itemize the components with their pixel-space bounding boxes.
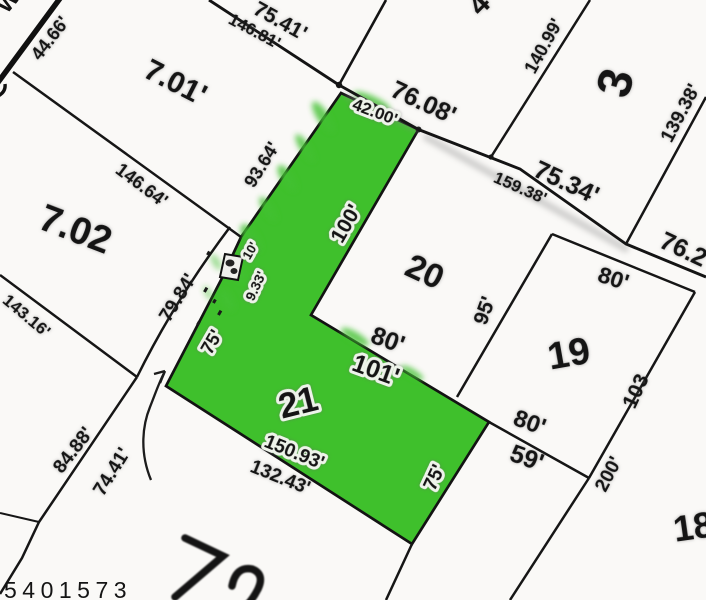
svg-text:19: 19 xyxy=(544,330,593,379)
svg-text:18: 18 xyxy=(671,504,706,550)
svg-text:5401573: 5401573 xyxy=(4,577,132,600)
